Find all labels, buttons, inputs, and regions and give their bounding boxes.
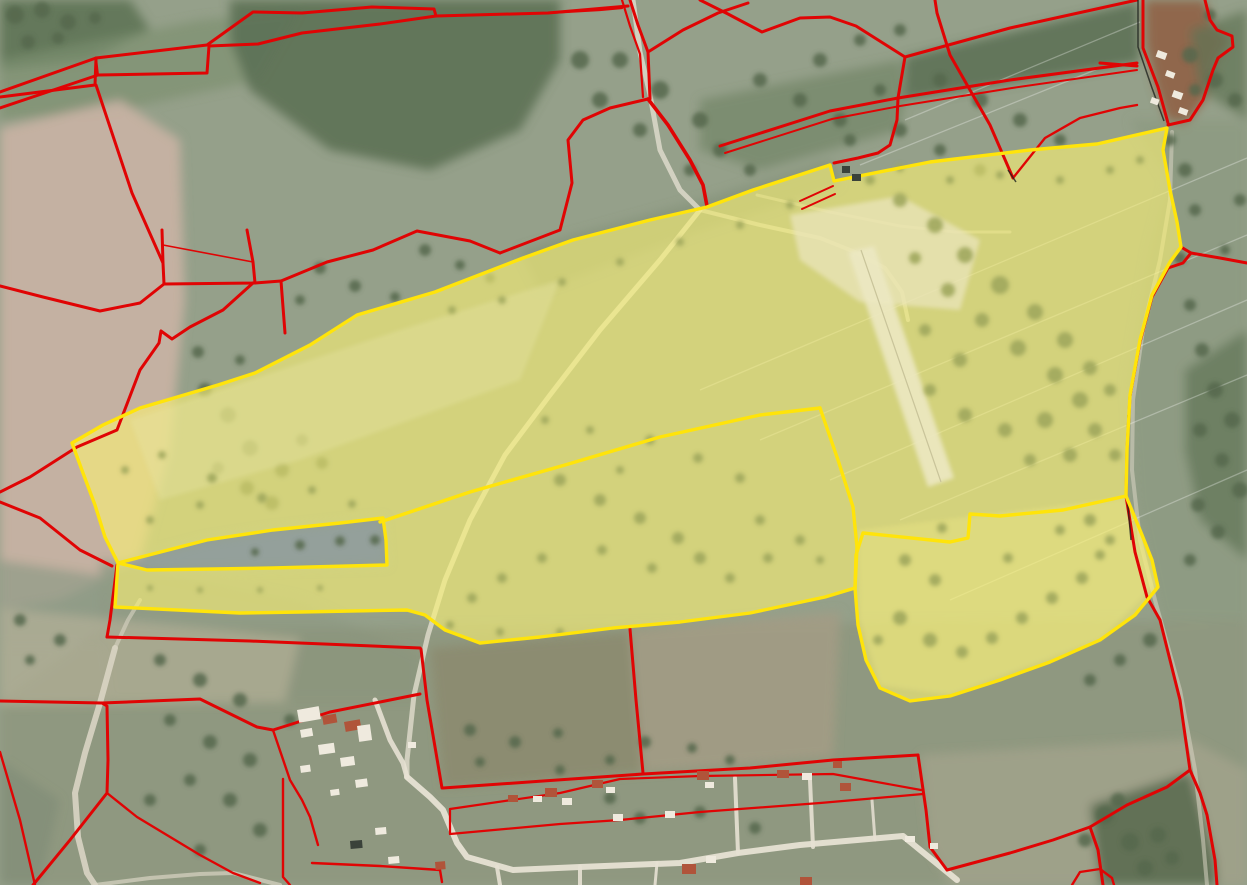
tree-olive xyxy=(537,553,547,563)
tree-olive xyxy=(1095,550,1105,560)
tree-olive xyxy=(207,473,217,483)
building-white-roof xyxy=(355,778,368,788)
building-white-roof xyxy=(330,789,340,796)
tree-olive xyxy=(616,466,624,474)
building-white-roof xyxy=(665,811,675,818)
tree-dark xyxy=(1184,554,1196,566)
tree-dark xyxy=(793,93,807,107)
building-white-roof xyxy=(705,782,714,788)
tree-dark xyxy=(34,2,50,18)
tree-dark xyxy=(753,73,767,87)
tree-olive xyxy=(1063,448,1077,462)
tree-olive xyxy=(919,324,931,336)
building-white-roof xyxy=(562,798,572,805)
tree-olive xyxy=(446,621,454,629)
tree-olive xyxy=(946,176,954,184)
building-dark-roof xyxy=(852,174,861,181)
building-white-roof xyxy=(613,814,623,821)
tree-dark xyxy=(571,51,589,69)
tree-dark xyxy=(243,753,257,767)
tree-dark xyxy=(813,53,827,67)
tree-dark xyxy=(1182,47,1198,63)
tree-olive xyxy=(308,486,316,494)
tree-dark xyxy=(612,52,628,68)
tree-olive xyxy=(498,296,506,304)
tree-olive xyxy=(586,426,594,434)
tree-olive xyxy=(956,646,968,658)
tree-olive xyxy=(693,453,703,463)
tree-olive xyxy=(121,466,129,474)
terrain-patch-bare-parcel-right xyxy=(630,612,840,772)
tree-dark xyxy=(144,794,156,806)
building-white-roof xyxy=(357,724,372,742)
tree-olive xyxy=(448,306,456,314)
tree-olive xyxy=(672,532,684,544)
tree-olive xyxy=(873,635,883,645)
tree-dark xyxy=(1234,194,1246,206)
tree-olive xyxy=(957,247,973,263)
tree-olive xyxy=(909,252,921,264)
building-red-roof xyxy=(545,788,557,797)
tree-dark xyxy=(475,757,485,767)
tree-dark xyxy=(1114,654,1126,666)
tree-olive xyxy=(986,632,998,644)
tree-dark xyxy=(60,14,76,30)
building-red-roof xyxy=(840,783,851,791)
building-white-roof xyxy=(606,787,615,793)
tree-dark xyxy=(844,134,856,146)
building-dark-roof xyxy=(350,840,363,849)
building-white-roof xyxy=(300,765,311,773)
tree-olive xyxy=(348,500,356,508)
satellite-map-view[interactable] xyxy=(0,0,1247,885)
tree-olive xyxy=(496,628,504,636)
building-white-roof xyxy=(533,796,542,802)
tree-olive xyxy=(467,593,477,603)
tree-dark xyxy=(1184,299,1196,311)
tree-dark xyxy=(203,735,217,749)
building-red-roof xyxy=(682,864,696,874)
tree-dark xyxy=(1193,423,1207,437)
tree-dark xyxy=(605,755,615,765)
tree-dark xyxy=(25,655,35,665)
tree-dark xyxy=(1207,382,1223,398)
tree-dark xyxy=(1054,134,1066,146)
tree-olive xyxy=(929,574,941,586)
building-white-roof xyxy=(905,836,915,842)
tree-dark xyxy=(1165,851,1179,865)
tree-olive xyxy=(1088,423,1102,437)
tree-olive xyxy=(694,552,706,564)
tree-olive xyxy=(647,563,657,573)
tree-dark xyxy=(154,654,166,666)
tree-olive xyxy=(1104,384,1116,396)
tree-dark xyxy=(1189,84,1201,96)
tree-dark xyxy=(455,260,465,270)
tree-olive xyxy=(1010,340,1026,356)
tree-olive xyxy=(755,515,765,525)
tree-olive xyxy=(541,416,549,424)
tree-olive xyxy=(1105,535,1115,545)
tree-dark xyxy=(235,355,245,365)
tree-dark xyxy=(874,84,886,96)
tree-dark xyxy=(89,12,101,24)
tree-olive xyxy=(786,201,794,209)
tree-dark xyxy=(1189,204,1201,216)
tree-olive xyxy=(597,545,607,555)
tree-dark xyxy=(192,346,204,358)
tree-olive xyxy=(257,587,263,593)
building-dark-roof xyxy=(842,166,850,173)
tree-dark xyxy=(349,280,361,292)
tree-dark xyxy=(1143,633,1157,647)
tree-olive xyxy=(1057,332,1073,348)
tree-dark xyxy=(1211,525,1225,539)
tree-dark xyxy=(687,743,697,753)
tree-dark xyxy=(419,244,431,256)
tree-olive xyxy=(558,278,566,286)
tree-dark xyxy=(1195,343,1209,357)
tree-dark xyxy=(833,113,847,127)
tree-olive xyxy=(1047,367,1063,383)
tree-dark xyxy=(464,724,476,736)
tree-olive xyxy=(937,523,947,533)
tree-olive xyxy=(893,193,907,207)
tree-dark xyxy=(253,823,267,837)
tree-dark xyxy=(749,822,761,834)
tree-olive xyxy=(795,535,805,545)
tree-olive xyxy=(927,217,943,233)
tree-dark xyxy=(370,535,380,545)
tree-dark xyxy=(894,24,906,36)
tree-olive xyxy=(1084,514,1096,526)
building-red-roof xyxy=(592,780,603,788)
tree-dark xyxy=(1150,827,1166,843)
tree-dark xyxy=(1013,113,1027,127)
tree-olive xyxy=(725,573,735,583)
building-red-roof xyxy=(435,861,446,870)
tree-olive xyxy=(1109,449,1121,461)
tree-olive xyxy=(1003,553,1013,563)
tree-dark xyxy=(1220,245,1230,255)
tree-dark xyxy=(335,536,345,546)
tree-dark xyxy=(233,693,247,707)
tree-olive xyxy=(1076,572,1088,584)
map-canvas[interactable] xyxy=(0,0,1247,885)
tree-olive xyxy=(735,473,745,483)
tree-dark xyxy=(725,755,735,765)
road-village-stub-3 xyxy=(655,863,657,885)
building-white-roof xyxy=(930,843,938,849)
tree-olive xyxy=(1046,592,1058,604)
tree-olive xyxy=(1136,156,1144,164)
tree-olive xyxy=(991,276,1009,294)
tree-dark xyxy=(1084,674,1096,686)
tree-olive xyxy=(634,512,646,524)
tree-dark xyxy=(692,112,708,128)
tree-dark xyxy=(295,540,305,550)
tree-dark xyxy=(184,774,196,786)
building-white-roof xyxy=(408,742,416,748)
tree-olive xyxy=(317,585,323,591)
tree-olive xyxy=(996,171,1004,179)
tree-olive xyxy=(1037,412,1053,428)
tree-olive xyxy=(197,587,203,593)
tree-dark xyxy=(555,765,565,775)
tree-dark xyxy=(553,728,563,738)
tree-dark xyxy=(1111,793,1125,807)
tree-dark xyxy=(390,292,400,302)
tree-olive xyxy=(736,221,744,229)
tree-dark xyxy=(193,673,207,687)
tree-dark xyxy=(934,144,946,156)
tree-dark xyxy=(651,81,669,99)
tree-olive xyxy=(616,258,624,266)
building-red-roof xyxy=(800,877,812,885)
tree-dark xyxy=(1224,412,1240,428)
tree-dark xyxy=(604,792,616,804)
building-white-roof xyxy=(388,856,400,864)
tree-olive xyxy=(924,384,936,396)
building-white-roof xyxy=(706,856,716,863)
tree-olive xyxy=(865,175,875,185)
tree-dark xyxy=(295,295,305,305)
tree-dark xyxy=(1078,833,1092,847)
tree-dark xyxy=(251,548,259,556)
tree-olive xyxy=(554,474,566,486)
tree-dark xyxy=(14,614,26,626)
tree-olive xyxy=(941,283,955,297)
tree-olive xyxy=(1016,612,1028,624)
tree-olive xyxy=(146,516,154,524)
tree-dark xyxy=(744,164,756,176)
parcel-boundary-red xyxy=(162,230,163,263)
building-red-roof xyxy=(697,771,709,780)
parcel-boundary-red xyxy=(0,701,102,703)
tree-dark xyxy=(1137,860,1153,876)
tree-dark xyxy=(1228,93,1242,107)
tree-olive xyxy=(497,573,507,583)
tree-dark xyxy=(1121,833,1139,851)
tree-olive xyxy=(953,353,967,367)
building-red-roof xyxy=(833,761,842,768)
tree-olive xyxy=(998,423,1012,437)
tree-dark xyxy=(6,6,24,24)
tree-olive xyxy=(1055,525,1065,535)
tree-olive xyxy=(147,585,153,591)
tree-dark xyxy=(1178,163,1192,177)
tree-olive xyxy=(158,451,166,459)
tree-olive xyxy=(816,556,824,564)
tree-olive xyxy=(1027,304,1043,320)
tree-olive xyxy=(594,494,606,506)
tree-olive xyxy=(899,554,911,566)
tree-olive xyxy=(958,408,972,422)
tree-olive xyxy=(975,313,989,327)
tree-dark xyxy=(164,714,176,726)
tree-dark xyxy=(21,35,35,49)
tree-olive xyxy=(1024,454,1036,466)
building-white-roof xyxy=(375,827,387,835)
tree-dark xyxy=(54,634,66,646)
tree-dark xyxy=(52,32,64,44)
building-red-roof xyxy=(777,770,789,778)
tree-olive xyxy=(763,553,773,563)
building-white-roof xyxy=(802,773,812,780)
tree-olive xyxy=(923,633,937,647)
tree-dark xyxy=(592,92,608,108)
tree-olive xyxy=(1072,392,1088,408)
tree-olive xyxy=(1083,361,1097,375)
tree-dark xyxy=(854,34,866,46)
tree-olive xyxy=(893,611,907,625)
tree-olive xyxy=(676,238,684,246)
tree-dark xyxy=(509,736,521,748)
tree-dark xyxy=(933,73,947,87)
tree-olive xyxy=(1056,176,1064,184)
tree-olive xyxy=(257,493,267,503)
building-red-roof xyxy=(508,795,518,802)
tree-olive xyxy=(196,501,204,509)
tree-olive xyxy=(1106,166,1114,174)
tree-dark xyxy=(633,123,647,137)
tree-dark xyxy=(1215,453,1229,467)
tree-dark xyxy=(223,793,237,807)
tree-dark xyxy=(1191,498,1205,512)
